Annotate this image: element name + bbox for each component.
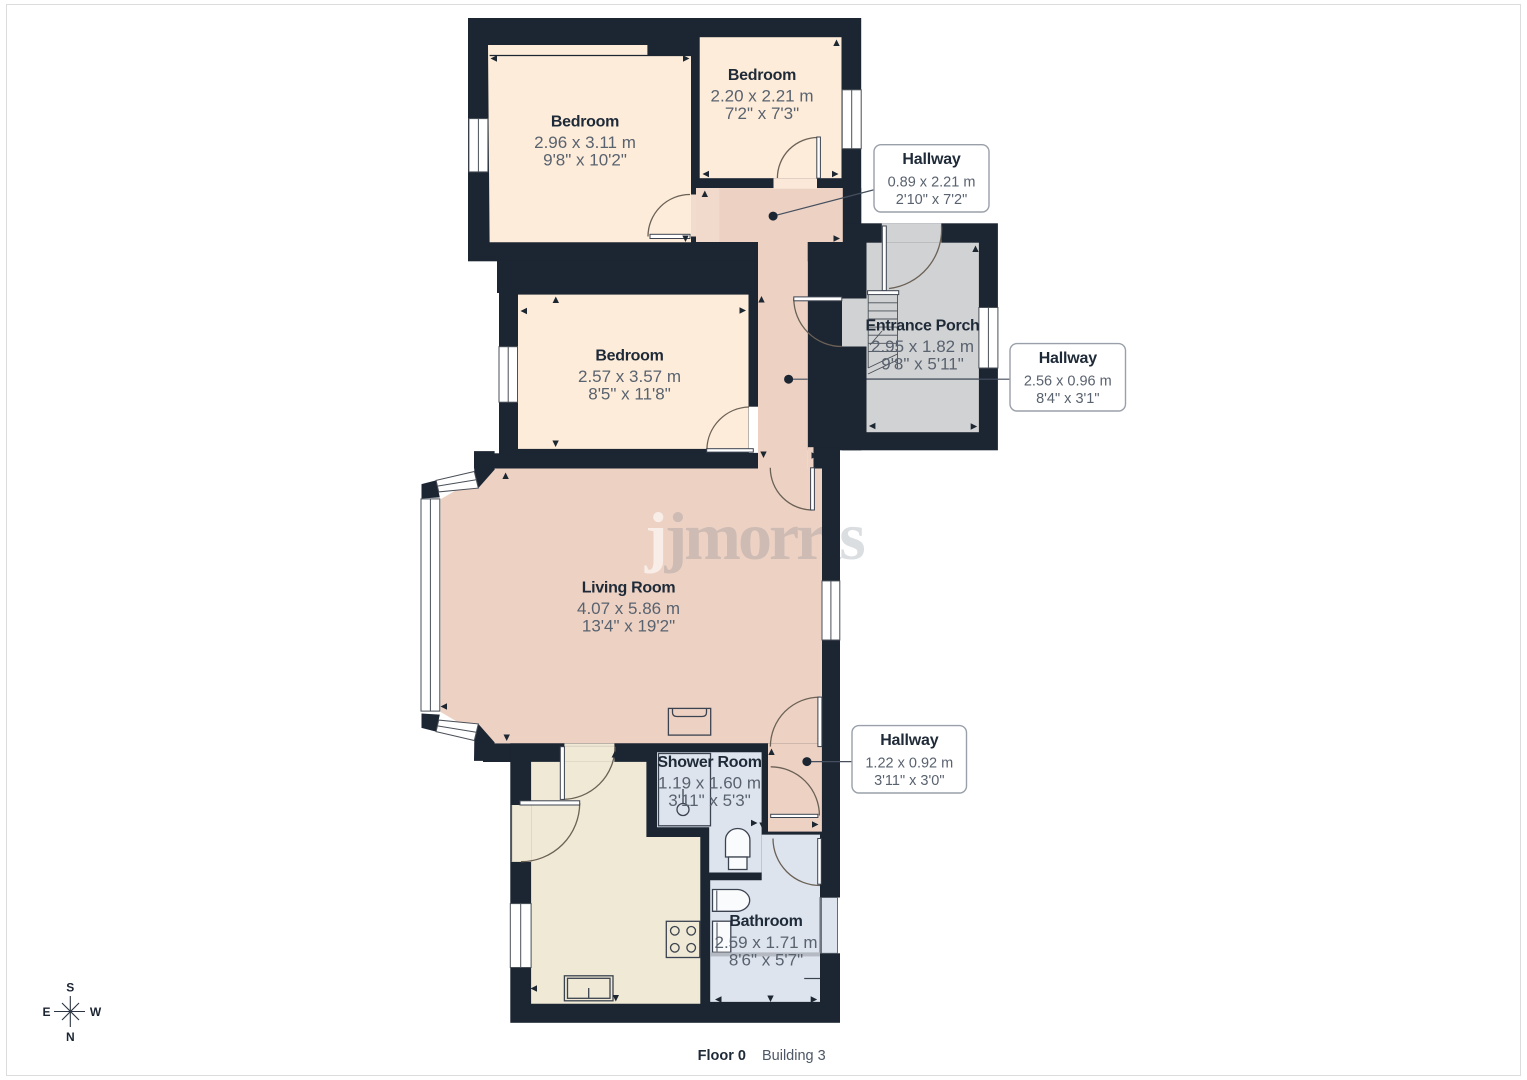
svg-text:2.57 x 3.57 m: 2.57 x 3.57 m	[578, 367, 681, 386]
svg-text:8'6" x 5'7": 8'6" x 5'7"	[729, 951, 803, 970]
svg-text:1.22 x 0.92 m: 1.22 x 0.92 m	[865, 755, 953, 771]
svg-text:2.96 x 3.11 m: 2.96 x 3.11 m	[534, 133, 636, 152]
svg-text:N: N	[66, 1030, 75, 1044]
svg-text:9'8" x 5'11": 9'8" x 5'11"	[881, 354, 964, 373]
svg-text:Hallway: Hallway	[1039, 350, 1097, 367]
svg-text:2.56 x 0.96 m: 2.56 x 0.96 m	[1024, 373, 1112, 389]
svg-text:9'8" x 10'2": 9'8" x 10'2"	[543, 151, 627, 170]
svg-text:Living Room: Living Room	[582, 580, 676, 597]
svg-text:Entrance Porch: Entrance Porch	[865, 317, 979, 334]
svg-text:2'10" x 7'2": 2'10" x 7'2"	[896, 192, 967, 208]
svg-text:3'11" x 5'3": 3'11" x 5'3"	[668, 791, 751, 810]
svg-text:0.89 x 2.21 m: 0.89 x 2.21 m	[888, 175, 976, 191]
svg-text:2.95 x 1.82 m: 2.95 x 1.82 m	[871, 337, 974, 356]
svg-text:Bedroom: Bedroom	[728, 67, 796, 84]
svg-text:Shower Room: Shower Room	[657, 754, 761, 771]
svg-text:13'4" x 19'2": 13'4" x 19'2"	[582, 617, 675, 636]
svg-text:7'2" x 7'3": 7'2" x 7'3"	[725, 104, 799, 123]
svg-text:8'5" x 11'8": 8'5" x 11'8"	[588, 385, 671, 404]
svg-text:S: S	[66, 981, 74, 995]
svg-text:Bedroom: Bedroom	[551, 114, 619, 131]
svg-text:4.07 x 5.86 m: 4.07 x 5.86 m	[577, 599, 680, 618]
svg-text:8'4" x 3'1": 8'4" x 3'1"	[1036, 391, 1099, 407]
svg-text:Hallway: Hallway	[880, 732, 938, 749]
svg-text:Hallway: Hallway	[902, 151, 960, 168]
svg-text:Bathroom: Bathroom	[729, 913, 802, 930]
svg-text:Building 3: Building 3	[762, 1048, 826, 1064]
svg-text:Floor 0: Floor 0	[698, 1048, 746, 1064]
svg-text:1.19 x 1.60 m: 1.19 x 1.60 m	[658, 774, 761, 793]
svg-text:2.59 x 1.71 m: 2.59 x 1.71 m	[714, 933, 817, 952]
svg-text:E: E	[42, 1005, 50, 1019]
svg-text:W: W	[90, 1005, 102, 1019]
svg-text:2.20 x 2.21 m: 2.20 x 2.21 m	[710, 87, 813, 106]
svg-text:3'11" x 3'0": 3'11" x 3'0"	[874, 773, 944, 789]
svg-text:Bedroom: Bedroom	[595, 348, 663, 365]
